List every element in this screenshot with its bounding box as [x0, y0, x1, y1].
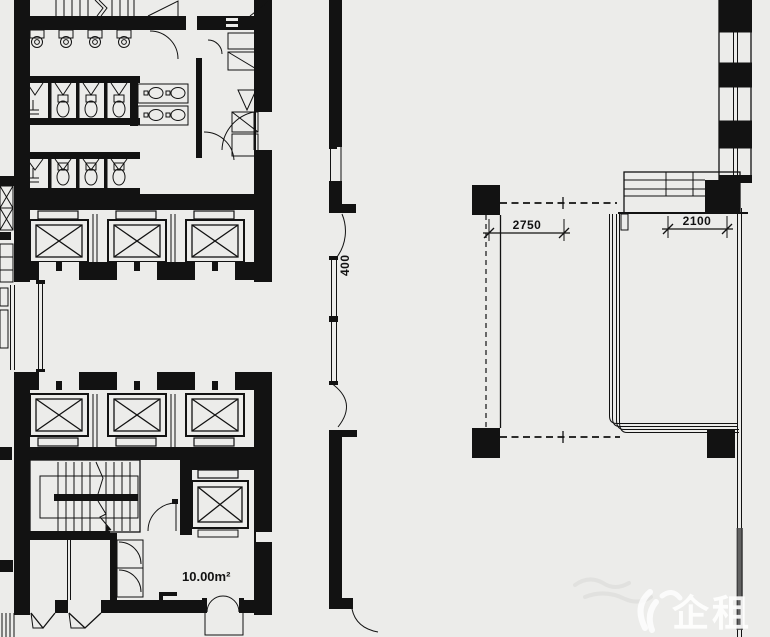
door-swing [119, 542, 141, 564]
toilet-icon [57, 95, 69, 117]
corridor-wall: 400 [329, 0, 378, 632]
exit-door-swings [31, 613, 101, 628]
glazing [39, 283, 43, 371]
floorplan-screenshot: 10.00m² [0, 0, 770, 637]
vent-shaft-upper [208, 33, 258, 70]
restroom-block [14, 0, 272, 210]
elevator-lobby [14, 194, 272, 462]
right-wall [737, 208, 744, 637]
urinal-icon [30, 30, 44, 48]
basin-icon [144, 110, 163, 121]
toilet-icon [113, 163, 125, 185]
upper-stair [56, 0, 268, 16]
glazing [331, 147, 342, 183]
watermark: 企租 [575, 579, 752, 634]
door-swing [331, 383, 347, 427]
elevator-car [108, 394, 166, 436]
corner-column [707, 429, 735, 458]
door-swing [337, 214, 345, 257]
toilet-stall-row-2 [22, 152, 140, 195]
urinal-icon [88, 30, 102, 48]
elevator-car [186, 220, 244, 262]
stair-core-block: 10.00m² [2, 450, 272, 637]
door-swing [148, 503, 176, 531]
door-swing [222, 112, 254, 150]
urinal-icon [59, 30, 73, 48]
elevator-car [30, 394, 88, 436]
dimension-400-label: 400 [338, 254, 352, 276]
urinal-row [30, 30, 131, 48]
atrium-void: 2750 2100 [472, 0, 752, 637]
partition-wall [196, 58, 202, 158]
column [472, 185, 500, 215]
dimension-2750: 2750 [483, 218, 570, 241]
urinal-icon [117, 30, 131, 48]
wall [254, 0, 272, 210]
stairwell [30, 460, 140, 532]
door-swing [204, 132, 234, 160]
toilet-icon [85, 95, 97, 117]
basin-icon [144, 88, 163, 99]
dimension-2750-label: 2750 [513, 218, 542, 232]
toilet-icon [57, 163, 69, 185]
threshold-step [159, 592, 177, 600]
cutoff-wall-lines [2, 613, 14, 637]
watermark-swirl-icon [641, 592, 656, 630]
toilet-icon [85, 163, 97, 185]
door-swing [352, 609, 378, 632]
dimension-2100: 2100 [662, 214, 733, 238]
facade-pier-wall [719, 0, 752, 183]
watermark-text: 企租 [672, 592, 752, 634]
faint-scribble [575, 579, 651, 601]
left-edge-cut-elements [0, 176, 15, 572]
floorplan-drawing: 10.00m² [0, 0, 770, 637]
toilet-icon [113, 95, 125, 117]
elevator-car [30, 220, 88, 262]
door-swing [150, 31, 178, 59]
door-swing [148, 1, 178, 16]
door-swing [119, 570, 141, 592]
room-divider [68, 540, 71, 600]
column [472, 428, 500, 458]
elevator-car [108, 220, 166, 262]
stair-direction-arrow [98, 501, 111, 530]
balustrade [610, 214, 740, 433]
toilet-stall-row-1 [22, 76, 140, 125]
vestibule [205, 613, 243, 635]
basin-icon [166, 110, 185, 121]
closets [110, 533, 143, 600]
dimension-2100-label: 2100 [683, 214, 712, 228]
basin-icon [166, 88, 185, 99]
room-area-label: 10.00m² [182, 569, 231, 584]
elevator-car [186, 394, 244, 436]
